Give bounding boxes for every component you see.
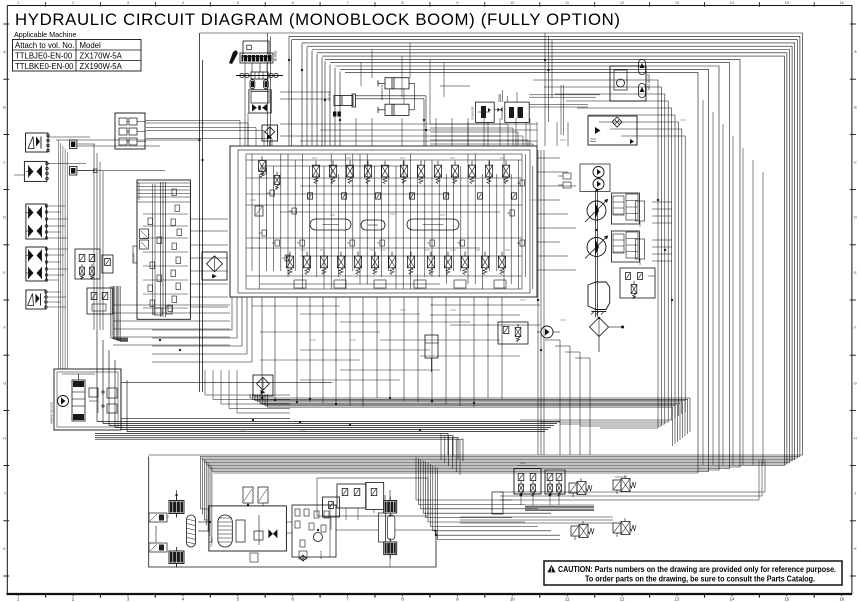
svg-text:J: J bbox=[4, 492, 6, 496]
svg-text:ZX190W-5A: ZX190W-5A bbox=[80, 62, 123, 71]
svg-text:D: D bbox=[3, 216, 6, 220]
svg-text:MT.CYL: MT.CYL bbox=[328, 90, 332, 101]
svg-text:SIGNAL: SIGNAL bbox=[132, 252, 136, 263]
svg-text:5: 5 bbox=[237, 1, 239, 5]
svg-text:13: 13 bbox=[675, 597, 680, 602]
svg-text:To order parts on the drawing,: To order parts on the drawing, be sure t… bbox=[585, 575, 815, 584]
svg-text:Applicable Machine: Applicable Machine bbox=[14, 30, 76, 39]
svg-text:16: 16 bbox=[840, 1, 844, 5]
svg-text:OILCOOLER: OILCOOLER bbox=[154, 526, 158, 542]
svg-text:D: D bbox=[854, 216, 857, 220]
svg-text:13: 13 bbox=[675, 1, 679, 5]
svg-text:14: 14 bbox=[730, 1, 734, 5]
svg-text:SOLENOID: SOLENOID bbox=[500, 106, 504, 120]
svg-text:15: 15 bbox=[784, 597, 789, 602]
svg-text:11: 11 bbox=[565, 597, 570, 602]
svg-text:16: 16 bbox=[839, 597, 844, 602]
svg-text:9: 9 bbox=[456, 1, 458, 5]
svg-text:11: 11 bbox=[565, 1, 569, 5]
svg-text:ZX170W-5A: ZX170W-5A bbox=[80, 51, 123, 60]
svg-text:J: J bbox=[855, 492, 857, 496]
svg-text:HYDRAULIC CIRCUIT DIAGRAM (MON: HYDRAULIC CIRCUIT DIAGRAM (MONOBLOCK BOO… bbox=[15, 10, 620, 29]
svg-text:SOLENOID: SOLENOID bbox=[471, 106, 475, 120]
svg-text:14: 14 bbox=[730, 597, 735, 602]
svg-text:H: H bbox=[854, 437, 857, 441]
svg-text:Attach to vol. No.: Attach to vol. No. bbox=[15, 41, 74, 50]
svg-text:6: 6 bbox=[292, 1, 294, 5]
svg-text:10: 10 bbox=[510, 1, 514, 5]
svg-text:4: 4 bbox=[182, 1, 184, 5]
svg-text:SWING DEVICE: SWING DEVICE bbox=[50, 402, 54, 424]
svg-text:2: 2 bbox=[72, 1, 74, 5]
svg-text:15: 15 bbox=[785, 1, 789, 5]
svg-text:7: 7 bbox=[347, 1, 349, 5]
svg-text:C: C bbox=[854, 161, 857, 165]
svg-text:TTLBJE0-EN-00: TTLBJE0-EN-00 bbox=[15, 51, 73, 60]
svg-text:12: 12 bbox=[620, 1, 624, 5]
svg-text:12: 12 bbox=[620, 597, 625, 602]
svg-text:!: ! bbox=[550, 567, 552, 574]
svg-text:10: 10 bbox=[510, 597, 515, 602]
svg-text:Model: Model bbox=[80, 41, 102, 50]
svg-text:TTLBKE0-EN-00: TTLBKE0-EN-00 bbox=[15, 62, 74, 71]
svg-text:TRAVEL: TRAVEL bbox=[210, 536, 214, 547]
svg-text:M/U VALVE: M/U VALVE bbox=[647, 73, 651, 90]
svg-text:CAUTION: Parts numbers on the: CAUTION: Parts numbers on the drawing ar… bbox=[558, 565, 836, 574]
svg-text:PILOT: PILOT bbox=[319, 551, 323, 559]
svg-text:SOL: SOL bbox=[383, 494, 387, 500]
svg-text:G: G bbox=[854, 381, 857, 385]
svg-text:C: C bbox=[3, 161, 6, 165]
svg-text:BOOM.CYL: BOOM.CYL bbox=[380, 84, 384, 100]
svg-text:BLADE: BLADE bbox=[274, 51, 278, 61]
svg-text:xxxx: xxxx bbox=[520, 461, 526, 465]
svg-text:H: H bbox=[3, 437, 6, 441]
svg-text:8: 8 bbox=[402, 1, 404, 5]
svg-text:3: 3 bbox=[127, 1, 129, 5]
svg-text:G: G bbox=[3, 381, 6, 385]
svg-text:1: 1 bbox=[17, 1, 19, 5]
